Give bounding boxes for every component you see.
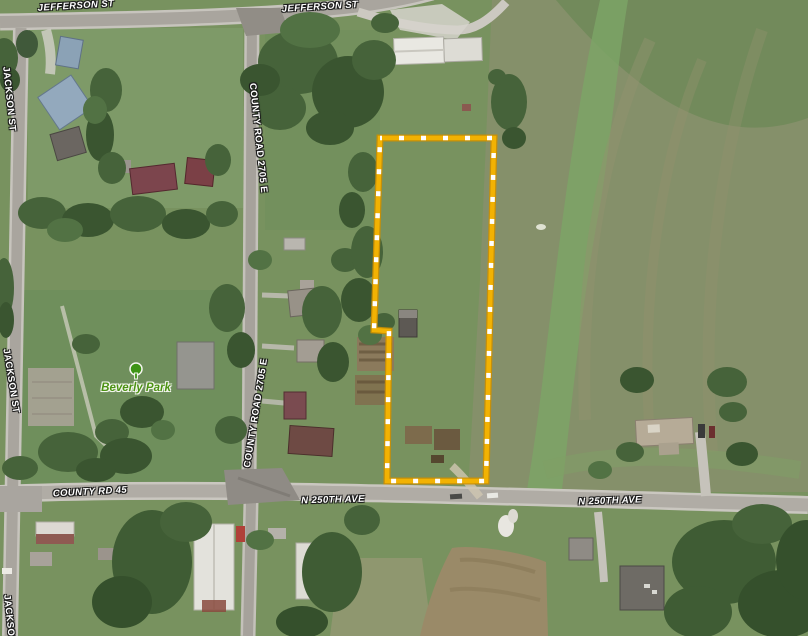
map-canvas [0,0,808,636]
satellite-map[interactable]: JEFFERSON ST JEFFERSON ST JACKSON ST JAC… [0,0,808,636]
